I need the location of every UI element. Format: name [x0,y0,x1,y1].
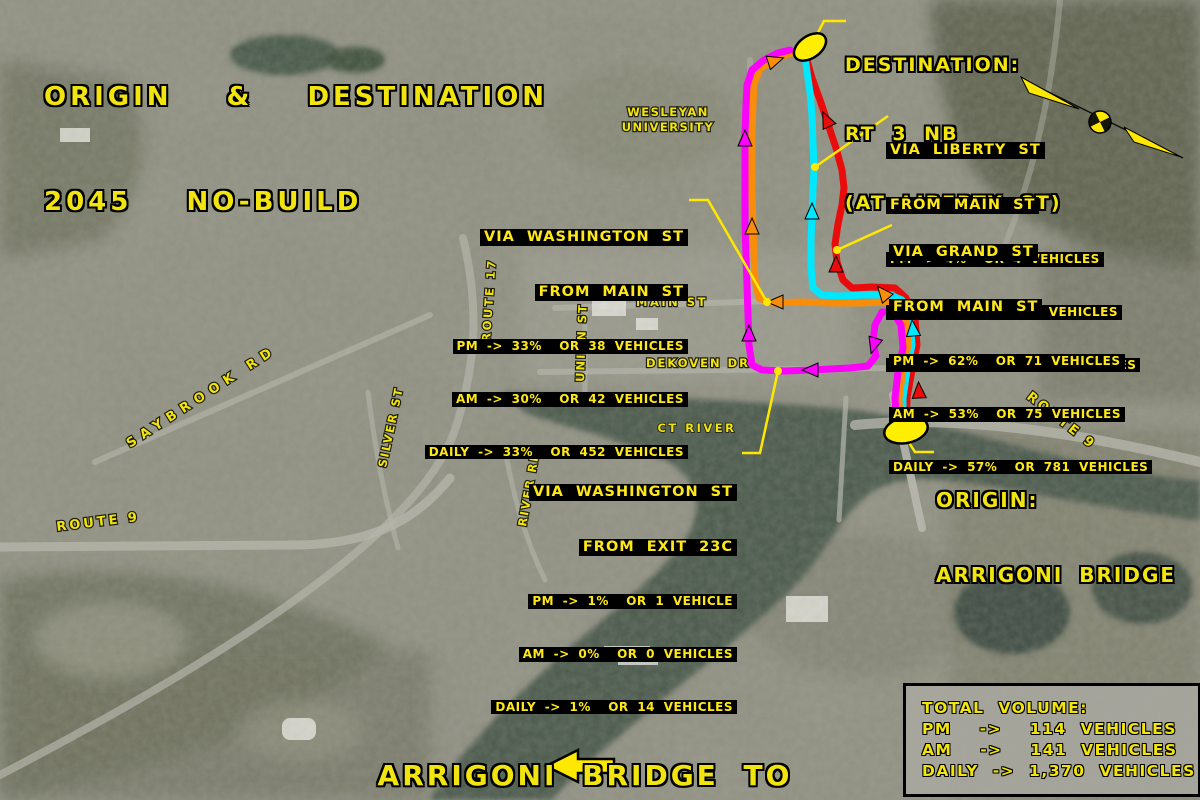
callout-via-washington-st-main: VIA WASHINGTON ST FROM MAIN ST PM -> 33%… [388,191,688,478]
destination-label-line1: DESTINATION: [845,54,1062,77]
total-volume-daily: DAILY -> 1,370 VEHICLES [922,761,1184,782]
callout-title: VIA LIBERTY ST [886,142,1045,159]
callout-pm-stat: PM -> 33% OR 38 VEHICLES [453,339,689,354]
callout-pm-stat: PM -> 1% OR 1 VEHICLE [528,594,737,609]
corridor-title-line1: ARRIGONI BRIDGE TO [285,758,885,793]
origin-label-line2: ARRIGONI BRIDGE [936,563,1176,588]
map-title-line1: ORIGIN & DESTINATION [44,80,548,115]
map-stage: WESLEYAN UNIVERSITY MAIN ST DEKOVEN DR C… [0,0,1200,800]
callout-title: VIA WASHINGTON ST [480,229,688,246]
label-wesleyan-line1: WESLEYAN [627,105,709,119]
callout-subtitle: FROM EXIT 23C [579,539,737,556]
callout-am-stat: AM -> 30% OR 42 VEHICLES [452,392,688,407]
callout-daily-stat: DAILY -> 57% OR 781 VEHICLES [889,460,1152,475]
callout-title: VIA GRAND ST [889,244,1038,261]
total-volume-pm: PM -> 114 VEHICLES [922,719,1184,740]
callout-am-stat: AM -> 0% OR 0 VEHICLES [519,647,737,662]
callout-subtitle: FROM MAIN ST [535,284,688,301]
callout-am-stat: AM -> 53% OR 75 VEHICLES [889,407,1125,422]
callout-pm-stat: PM -> 62% OR 71 VEHICLES [889,354,1125,369]
total-volume-panel: TOTAL VOLUME: PM -> 114 VEHICLES AM -> 1… [903,683,1200,797]
total-volume-am: AM -> 141 VEHICLES [922,740,1184,761]
callout-title: VIA WASHINGTON ST [529,484,737,501]
label-wesleyan-line2: UNIVERSITY [622,120,715,134]
callout-via-grand-st: VIA GRAND ST FROM MAIN ST PM -> 62% OR 7… [889,206,1152,493]
corridor-title: ARRIGONI BRIDGE TO ROUTE 3 NORTHBOUND [285,688,885,800]
total-volume-title: TOTAL VOLUME: [922,698,1184,719]
callout-subtitle: FROM MAIN ST [889,299,1042,316]
